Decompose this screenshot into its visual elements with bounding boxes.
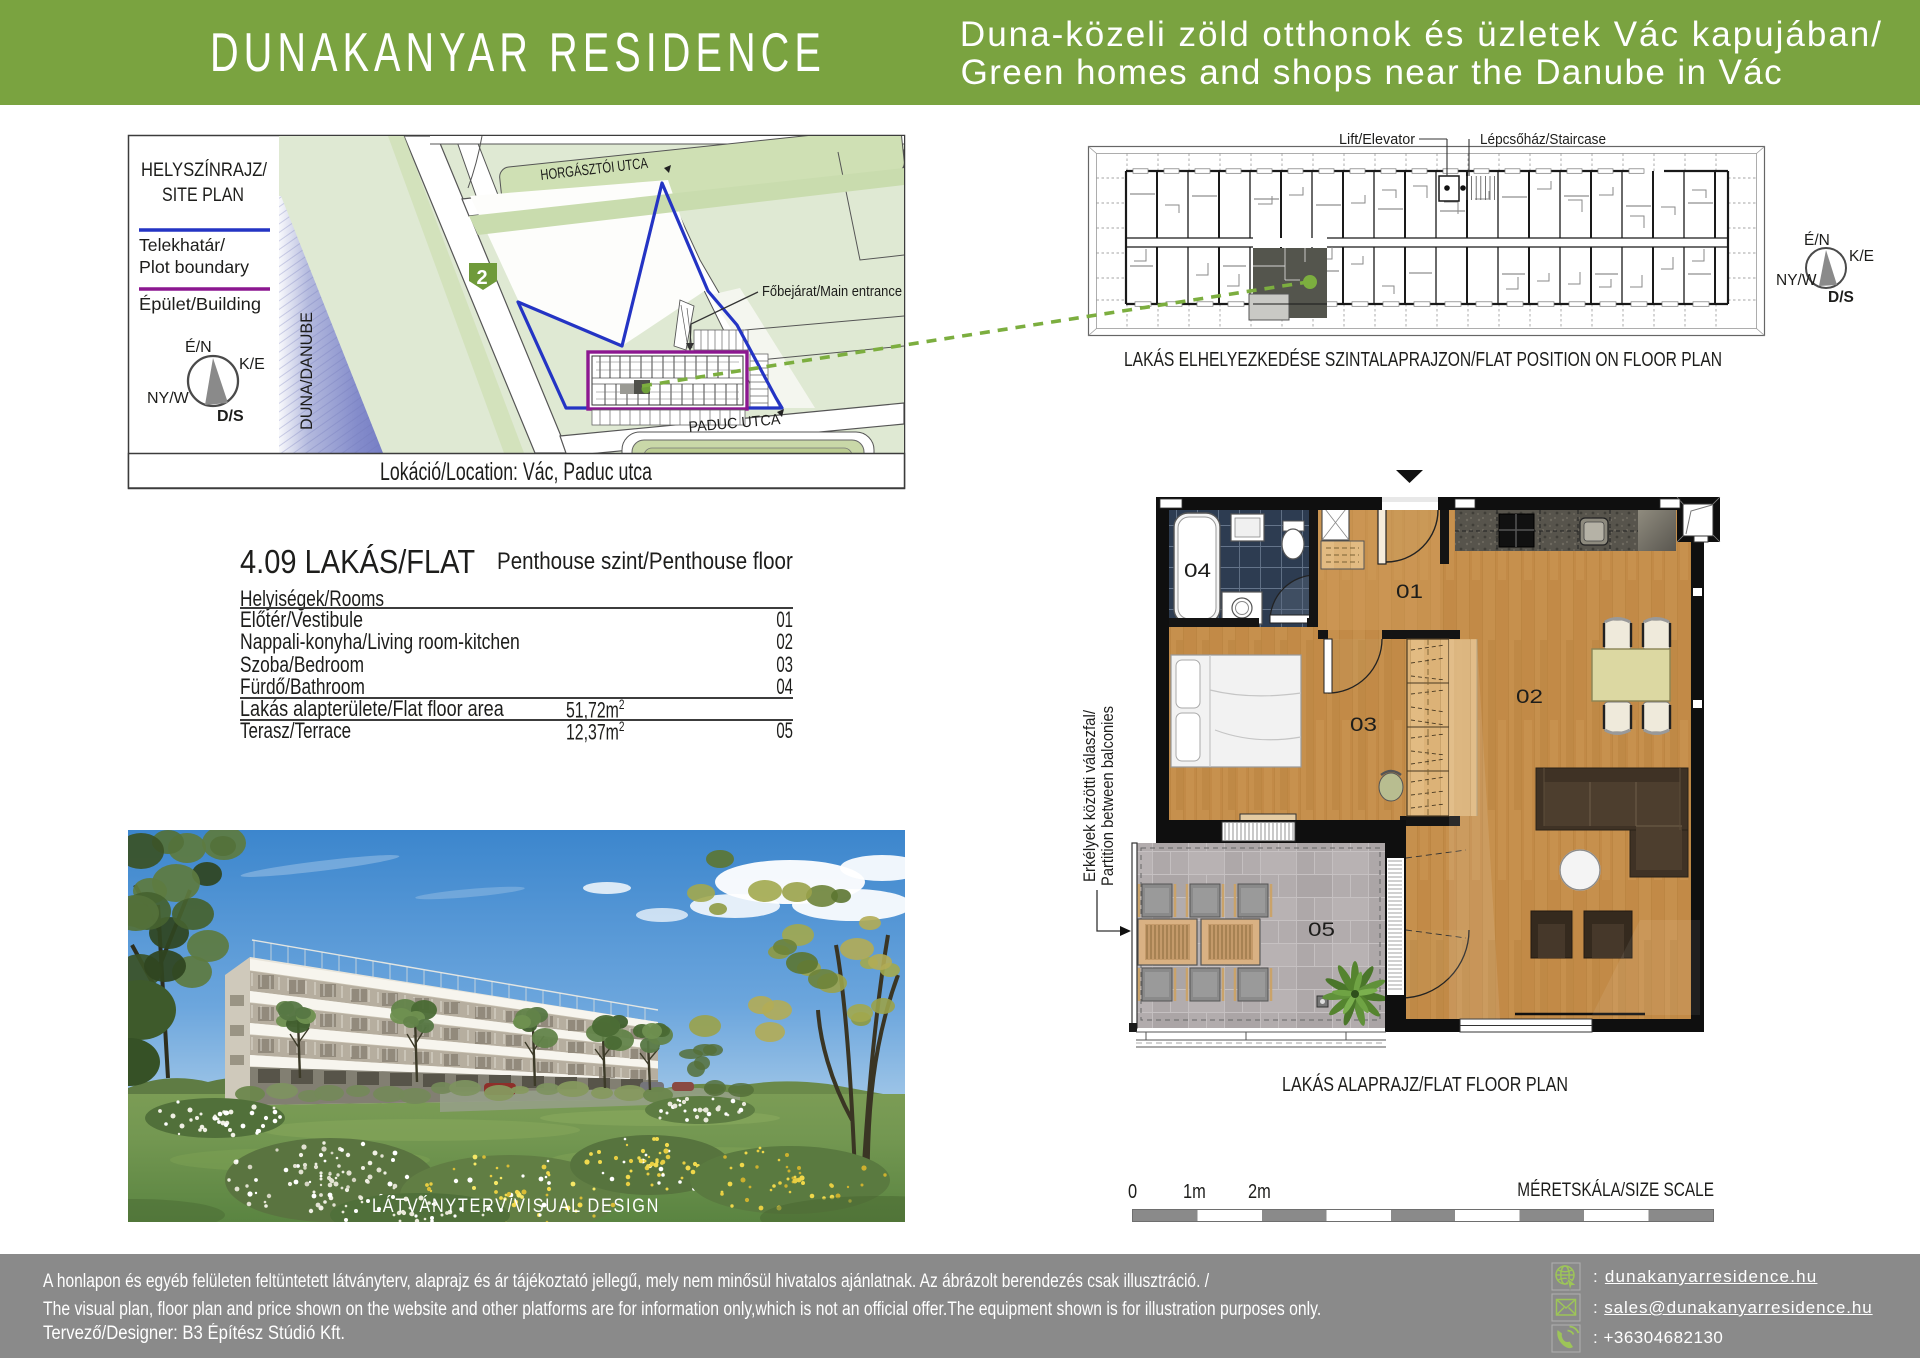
svg-text:Erkélyek közötti válaszfal/: Erkélyek közötti válaszfal/ bbox=[1081, 710, 1099, 882]
svg-text:NY/W: NY/W bbox=[147, 390, 190, 407]
svg-text:Partition between balconies: Partition between balconies bbox=[1099, 706, 1117, 886]
svg-text:Épület/Building: Épület/Building bbox=[139, 294, 261, 314]
svg-text:Lokáció/Location: Vác, Paduc u: Lokáció/Location: Vác, Paduc utca bbox=[380, 458, 652, 486]
svg-text:DUNA/DANUBE: DUNA/DANUBE bbox=[297, 312, 316, 430]
svg-text:K/E: K/E bbox=[1849, 248, 1874, 265]
svg-text:D/S: D/S bbox=[1828, 289, 1854, 306]
svg-text:05: 05 bbox=[1308, 920, 1335, 941]
svg-text:HELYSZÍNRAJZ/: HELYSZÍNRAJZ/ bbox=[141, 158, 267, 181]
svg-text:LÁTVÁNYTERV/VISUAL DESIGN: LÁTVÁNYTERV/VISUAL DESIGN bbox=[372, 1196, 660, 1217]
svg-text:LAKÁS ALAPRAJZ/FLAT FLOOR PLAN: LAKÁS ALAPRAJZ/FLAT FLOOR PLAN bbox=[1282, 1073, 1568, 1096]
svg-text:K/E: K/E bbox=[239, 356, 265, 373]
svg-text:NY/W: NY/W bbox=[1776, 272, 1817, 289]
svg-text:Telekhatár/: Telekhatár/ bbox=[139, 235, 225, 255]
svg-text:2: 2 bbox=[477, 267, 488, 289]
svg-text:LAKÁS ELHELYEZKEDÉSE SZINTALAP: LAKÁS ELHELYEZKEDÉSE SZINTALAPRAJZON/FLA… bbox=[1124, 348, 1722, 371]
svg-text:D/S: D/S bbox=[217, 408, 244, 425]
svg-text:01: 01 bbox=[1396, 582, 1423, 603]
svg-text:Lépcsőház/Staircase: Lépcsőház/Staircase bbox=[1480, 131, 1606, 148]
svg-text:02: 02 bbox=[1516, 687, 1543, 708]
svg-text:É/N: É/N bbox=[1804, 232, 1830, 249]
svg-text:Lift/Elevator: Lift/Elevator bbox=[1339, 131, 1415, 148]
svg-text:03: 03 bbox=[1350, 715, 1377, 736]
svg-text:04: 04 bbox=[1184, 561, 1212, 582]
svg-text:SITE PLAN: SITE PLAN bbox=[162, 184, 244, 206]
svg-text:Főbejárat/Main entrance: Főbejárat/Main entrance bbox=[762, 283, 902, 300]
svg-text:É/N: É/N bbox=[185, 337, 212, 356]
svg-text:Plot boundary: Plot boundary bbox=[139, 257, 249, 277]
